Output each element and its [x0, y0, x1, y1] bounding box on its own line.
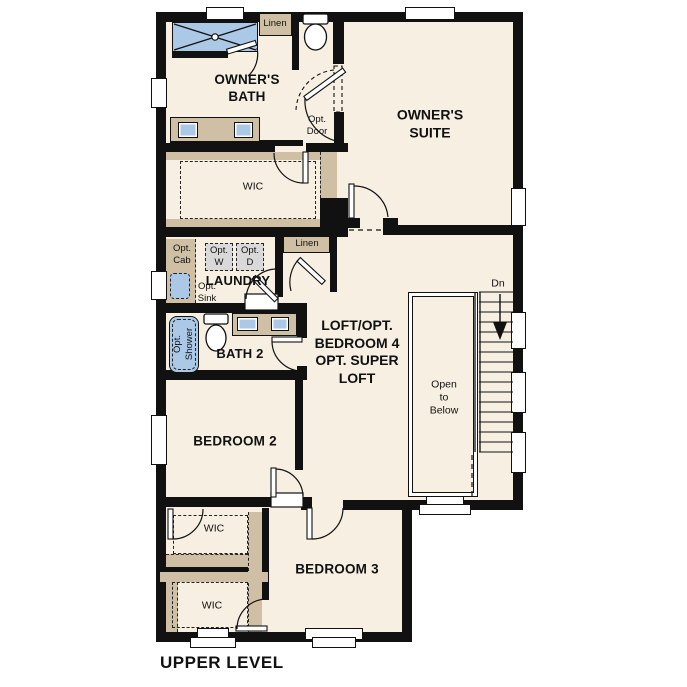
label-bedroom3: BEDROOM 3 [295, 562, 379, 579]
door-wic2 [236, 599, 267, 631]
stair-treads [479, 292, 513, 452]
label-owners-suite: OWNER'S SUITE [397, 107, 463, 142]
door-linen-hall [290, 258, 325, 291]
label-opt-cab: Opt. Cab [173, 243, 191, 267]
label-opt-dryer: Opt. D [241, 245, 259, 269]
door-shower [227, 40, 258, 76]
label-bedroom2: BEDROOM 2 [193, 434, 277, 451]
door-owners-suite [349, 184, 388, 218]
label-stairs-dn: Dn [491, 277, 504, 290]
label-wic2: WIC [202, 599, 222, 612]
stair-down-arrow [493, 294, 507, 340]
label-wic1: WIC [204, 522, 224, 535]
label-laundry: LAUNDRY [206, 273, 270, 289]
label-opt-washer: Opt. W [210, 245, 228, 269]
door-wic1 [168, 509, 203, 539]
label-opt-shower: Opt. Shower [172, 328, 196, 360]
toilet-owners-icon [303, 14, 328, 50]
door-bedroom2 [271, 468, 303, 507]
door-bedroom3 [307, 508, 343, 539]
door-bath2 [272, 337, 302, 371]
label-loft: LOFT/OPT. BEDROOM 4 OPT. SUPER LOFT [315, 317, 400, 387]
label-wic-owner: WIC [243, 180, 263, 193]
label-open-to-below: Open to Below [430, 378, 459, 417]
label-linen-top: Linen [263, 18, 286, 30]
label-bath2: BATH 2 [216, 346, 263, 362]
door-wic-owner [274, 152, 308, 183]
label-linen-hall: Linen [295, 238, 318, 250]
label-owners-bath: OWNER'S BATH [214, 72, 279, 106]
label-opt-door: Opt. Door [307, 114, 328, 138]
floor-plan: OWNER'S BATH OWNER'S SUITE WIC Linen Lin… [0, 0, 687, 687]
plan-title: UPPER LEVEL [160, 653, 284, 673]
